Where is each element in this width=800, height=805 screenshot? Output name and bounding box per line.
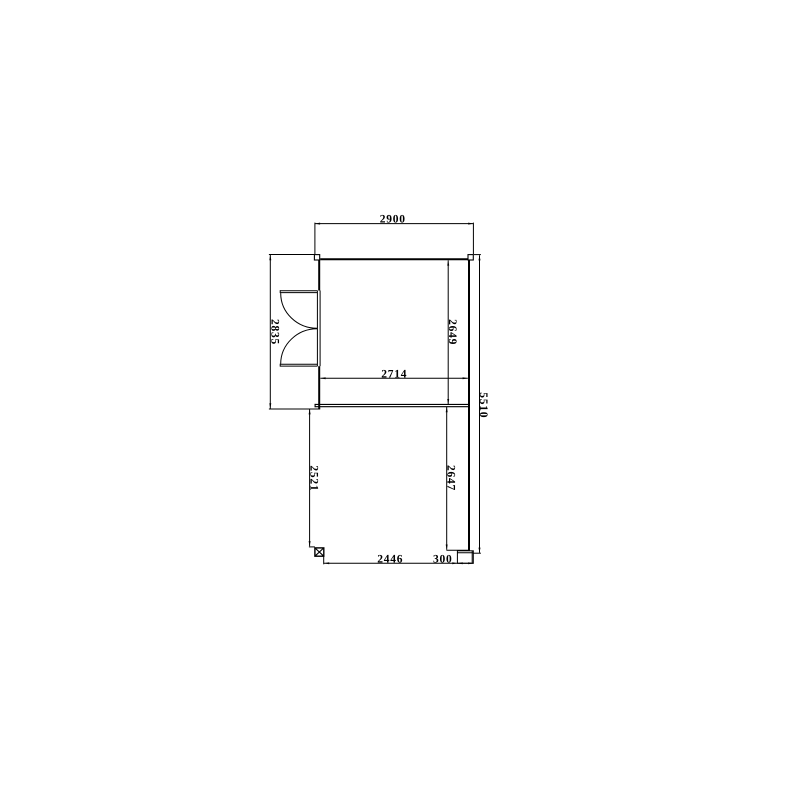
svg-text:5510: 5510 bbox=[477, 392, 489, 418]
svg-text:300: 300 bbox=[433, 554, 453, 566]
svg-text:2649: 2649 bbox=[446, 319, 458, 345]
svg-text:2835: 2835 bbox=[268, 319, 280, 345]
svg-text:2900: 2900 bbox=[380, 214, 406, 226]
svg-text:2714: 2714 bbox=[381, 369, 407, 381]
svg-text:2446: 2446 bbox=[377, 554, 403, 566]
svg-text:2647: 2647 bbox=[444, 465, 456, 491]
svg-text:2521: 2521 bbox=[307, 465, 319, 491]
